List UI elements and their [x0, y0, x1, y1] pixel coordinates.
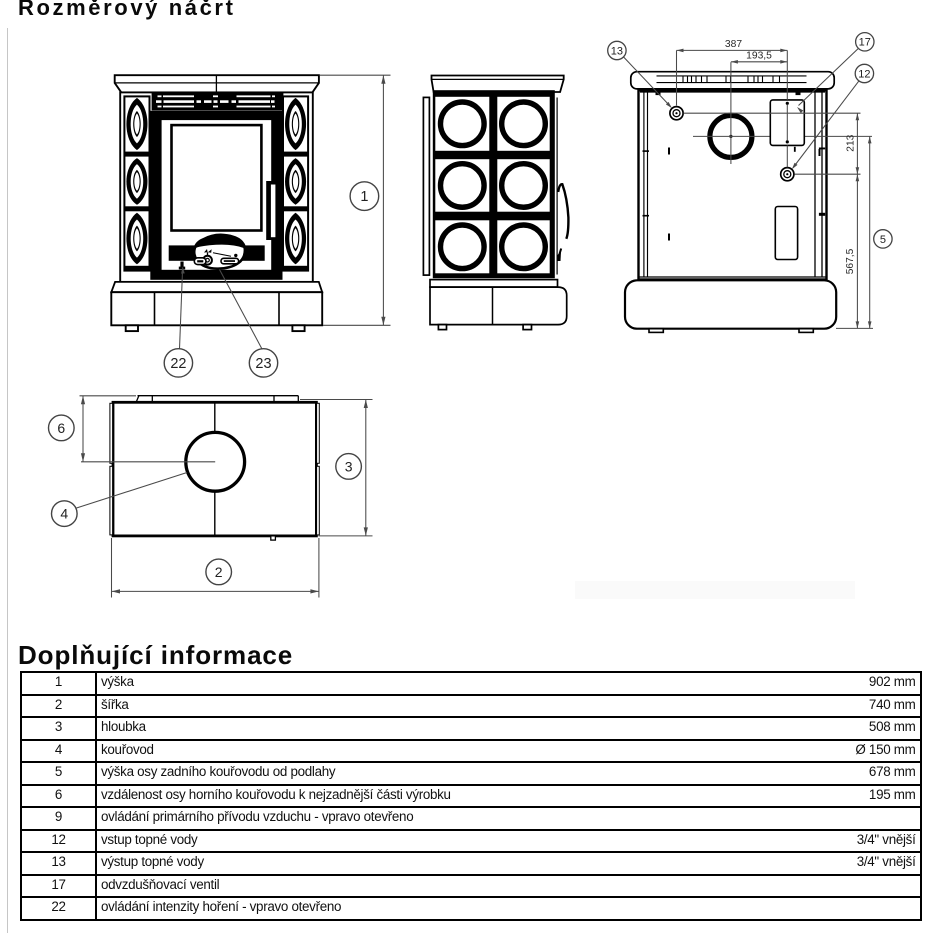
svg-text:17: 17: [859, 37, 871, 49]
svg-text:22: 22: [170, 356, 186, 372]
svg-text:6: 6: [57, 420, 65, 436]
svg-text:2: 2: [215, 564, 223, 580]
svg-text:4: 4: [60, 506, 68, 522]
svg-text:567,5: 567,5: [845, 248, 856, 274]
svg-text:5: 5: [880, 234, 886, 246]
svg-text:387: 387: [725, 39, 742, 50]
svg-text:23: 23: [255, 356, 271, 372]
svg-text:193,5: 193,5: [746, 51, 772, 62]
svg-text:3: 3: [345, 458, 353, 474]
svg-text:12: 12: [858, 68, 870, 80]
svg-text:13: 13: [611, 45, 623, 57]
svg-text:213: 213: [846, 134, 857, 151]
svg-text:1: 1: [360, 189, 368, 205]
